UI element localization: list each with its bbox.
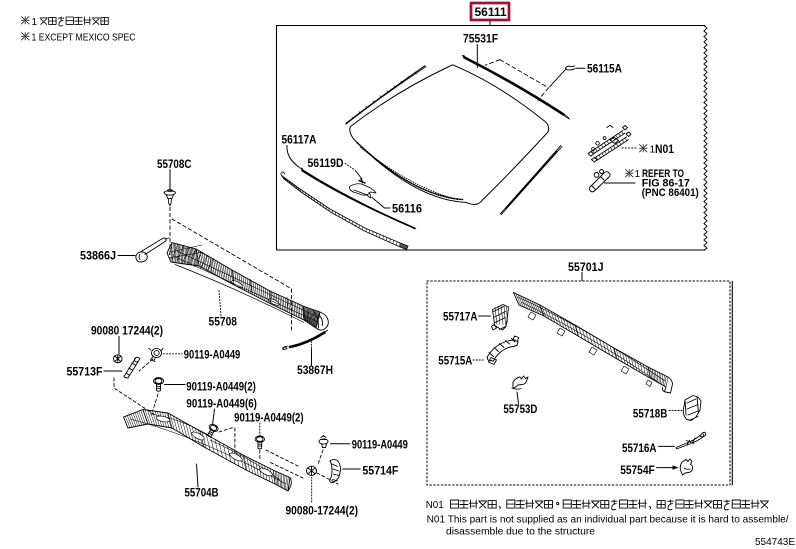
- svg-text:1: 1: [32, 17, 38, 28]
- svg-text:55704B: 55704B: [185, 486, 219, 500]
- svg-text:55715A: 55715A: [438, 354, 472, 368]
- svg-text:90119-A0449(2): 90119-A0449(2): [234, 411, 304, 425]
- svg-text:56117A: 56117A: [282, 133, 317, 147]
- svg-text:N01: N01: [655, 142, 674, 156]
- svg-text:55708: 55708: [209, 315, 238, 329]
- svg-text:56119D: 56119D: [308, 156, 344, 170]
- svg-text:90080 17244(2): 90080 17244(2): [91, 324, 163, 338]
- svg-text:56115A: 56115A: [587, 62, 622, 76]
- svg-text:56111: 56111: [475, 5, 507, 19]
- svg-text:55717A: 55717A: [443, 310, 478, 324]
- svg-text:56116: 56116: [392, 202, 422, 216]
- svg-text:90119-A0449(2): 90119-A0449(2): [186, 380, 256, 394]
- svg-text:90080-17244(2): 90080-17244(2): [286, 504, 359, 518]
- svg-text:55708C: 55708C: [157, 157, 192, 171]
- svg-text:90119-A0449(6): 90119-A0449(6): [186, 397, 257, 411]
- svg-text:90119-A0449: 90119-A0449: [184, 348, 241, 362]
- svg-text:55718B: 55718B: [633, 407, 668, 421]
- svg-text:disassemble due to the structu: disassemble due to the structure: [446, 527, 595, 538]
- svg-text:55754F: 55754F: [620, 463, 655, 477]
- svg-text:53867H: 53867H: [297, 363, 333, 377]
- svg-text:N01: N01: [426, 499, 444, 511]
- svg-text:1 EXCEPT MEXICO SPEC: 1 EXCEPT MEXICO SPEC: [32, 32, 136, 44]
- svg-text:(PNC 86401): (PNC 86401): [642, 187, 699, 199]
- svg-text:75531F: 75531F: [463, 32, 498, 46]
- svg-text:N01 This part is not supplied: N01 This part is not supplied as an indi…: [427, 515, 789, 526]
- svg-text:55701J: 55701J: [568, 260, 604, 274]
- svg-text:55713F: 55713F: [67, 365, 103, 379]
- svg-text:55753D: 55753D: [503, 402, 537, 416]
- svg-text:53866J: 53866J: [80, 249, 116, 263]
- svg-text:1: 1: [635, 169, 641, 180]
- svg-text:90119-A0449: 90119-A0449: [352, 438, 408, 452]
- svg-text:55716A: 55716A: [622, 441, 657, 455]
- svg-text:55714F: 55714F: [362, 464, 398, 478]
- svg-text:554743E: 554743E: [755, 536, 795, 548]
